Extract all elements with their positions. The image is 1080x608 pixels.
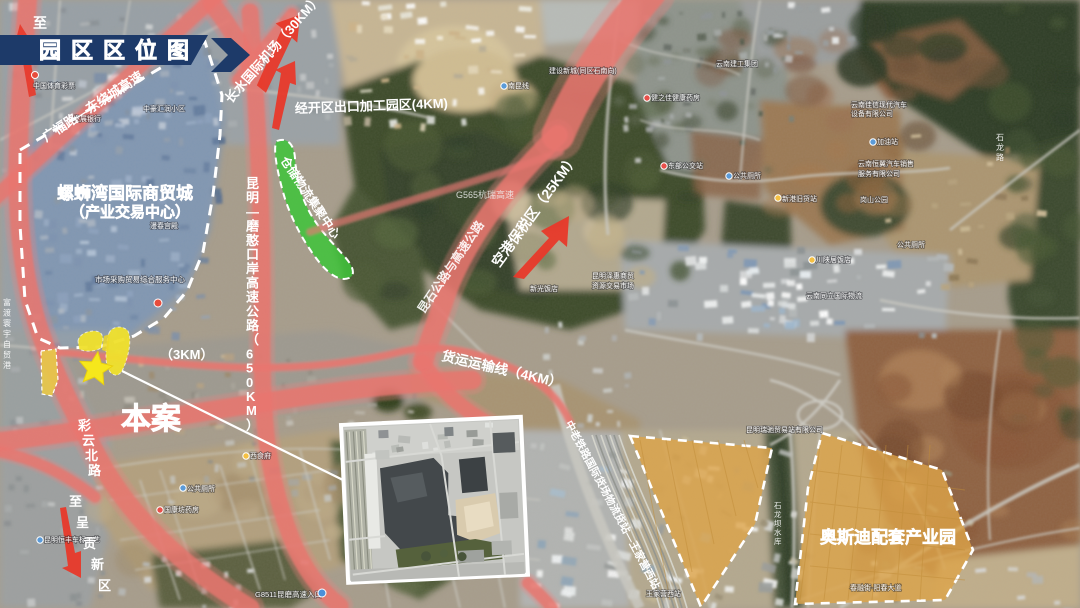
svg-text:（: （ xyxy=(246,332,259,347)
svg-text:寰: 寰 xyxy=(3,318,11,328)
svg-text:新光饭店: 新光饭店 xyxy=(530,284,558,293)
svg-text:中豪汇润小区: 中豪汇润小区 xyxy=(143,104,185,113)
svg-text:5: 5 xyxy=(246,361,253,376)
svg-text:岸: 岸 xyxy=(246,261,259,276)
svg-text:M: M xyxy=(246,403,257,418)
svg-text:路: 路 xyxy=(246,318,260,333)
svg-text:港: 港 xyxy=(3,360,11,370)
svg-text:贸: 贸 xyxy=(3,350,11,360)
svg-text:渡: 渡 xyxy=(3,308,11,318)
svg-text:本案: 本案 xyxy=(121,402,182,436)
svg-text:K: K xyxy=(246,389,256,404)
svg-text:服务有限公司: 服务有限公司 xyxy=(858,169,900,178)
svg-text:石: 石 xyxy=(774,501,782,510)
svg-text:0: 0 xyxy=(246,375,253,390)
svg-text:岗山公园: 岗山公园 xyxy=(860,195,888,204)
svg-text:水: 水 xyxy=(774,527,782,537)
svg-text:口: 口 xyxy=(246,247,259,262)
svg-text:—: — xyxy=(246,204,259,219)
svg-text:健之佳健康药房: 健之佳健康药房 xyxy=(651,93,700,102)
svg-text:石: 石 xyxy=(996,133,1004,142)
svg-text:云南同立国际物流: 云南同立国际物流 xyxy=(806,291,862,300)
svg-text:漫春宫殿: 漫春宫殿 xyxy=(150,221,178,230)
svg-text:公共厕所: 公共厕所 xyxy=(733,171,761,180)
svg-text:6: 6 xyxy=(246,346,253,361)
svg-text:G565杭瑞高速: G565杭瑞高速 xyxy=(456,189,514,200)
svg-text:明: 明 xyxy=(246,190,259,205)
svg-text:至: 至 xyxy=(69,494,82,509)
svg-text:）: ） xyxy=(246,417,259,432)
svg-text:新港旧货站: 新港旧货站 xyxy=(782,194,817,203)
svg-text:螺蛳湾国际商贸城: 螺蛳湾国际商贸城 xyxy=(57,183,193,203)
svg-text:中国体育彩票: 中国体育彩票 xyxy=(33,81,75,90)
svg-text:磨: 磨 xyxy=(246,219,259,234)
svg-text:南昆线: 南昆线 xyxy=(508,81,529,90)
svg-text:昆明瑞驰贸易站有限公司: 昆明瑞驰贸易站有限公司 xyxy=(746,425,823,434)
svg-text:自: 自 xyxy=(3,339,11,349)
svg-text:贡: 贡 xyxy=(83,536,96,551)
svg-text:云南建工集团: 云南建工集团 xyxy=(716,59,758,68)
svg-text:西食府: 西食府 xyxy=(250,451,271,460)
svg-text:憨: 憨 xyxy=(246,233,260,248)
svg-text:速: 速 xyxy=(246,290,259,305)
svg-text:彩: 彩 xyxy=(77,418,91,433)
svg-text:设备有限公司: 设备有限公司 xyxy=(851,109,893,118)
svg-text:富: 富 xyxy=(3,297,11,307)
svg-text:市场采购贸易综合服务中心: 市场采购贸易综合服务中心 xyxy=(95,274,185,284)
svg-text:呈: 呈 xyxy=(76,515,89,530)
svg-text:春融街·阳春大道: 春融街·阳春大道 xyxy=(850,583,901,592)
svg-text:国康坊药房: 国康坊药房 xyxy=(164,505,199,514)
svg-text:公共厕所: 公共厕所 xyxy=(897,240,925,249)
svg-text:公: 公 xyxy=(246,304,259,319)
svg-text:东部公交站: 东部公交站 xyxy=(668,161,703,170)
svg-text:宇: 宇 xyxy=(3,329,11,339)
svg-text:昆: 昆 xyxy=(246,176,259,191)
svg-text:园区区位图: 园区区位图 xyxy=(39,38,199,63)
svg-text:云南佳信现代汽车: 云南佳信现代汽车 xyxy=(851,100,907,109)
svg-text:云: 云 xyxy=(82,433,95,448)
svg-text:奥斯迪配套产业园: 奥斯迪配套产业园 xyxy=(820,527,956,547)
svg-text:（3KM）: （3KM） xyxy=(160,347,213,362)
svg-text:公共厕所: 公共厕所 xyxy=(187,484,215,493)
svg-text:高: 高 xyxy=(246,275,259,290)
svg-text:坝: 坝 xyxy=(774,519,782,528)
svg-text:云南恒翼汽车销售: 云南恒翼汽车销售 xyxy=(858,159,914,168)
svg-text:（产业交易中心）: （产业交易中心） xyxy=(70,203,190,221)
svg-text:龙: 龙 xyxy=(996,142,1004,152)
svg-text:资源交易市场: 资源交易市场 xyxy=(592,281,634,290)
svg-text:川陕居饭店: 川陕居饭店 xyxy=(816,255,851,264)
svg-text:建设新城(同区石南向): 建设新城(同区石南向) xyxy=(549,66,617,75)
svg-text:至: 至 xyxy=(33,15,47,31)
svg-text:G8511昆磨高速入口: G8511昆磨高速入口 xyxy=(255,589,322,599)
svg-text:北: 北 xyxy=(85,448,98,463)
svg-text:龙: 龙 xyxy=(774,509,782,519)
svg-text:库: 库 xyxy=(774,536,782,546)
svg-text:区: 区 xyxy=(98,578,111,593)
svg-text:加油站: 加油站 xyxy=(877,137,898,146)
svg-text:新: 新 xyxy=(91,557,104,572)
svg-text:路: 路 xyxy=(996,152,1004,162)
svg-text:昆明泽惠商贸: 昆明泽惠商贸 xyxy=(592,271,634,280)
svg-text:路: 路 xyxy=(88,463,102,478)
